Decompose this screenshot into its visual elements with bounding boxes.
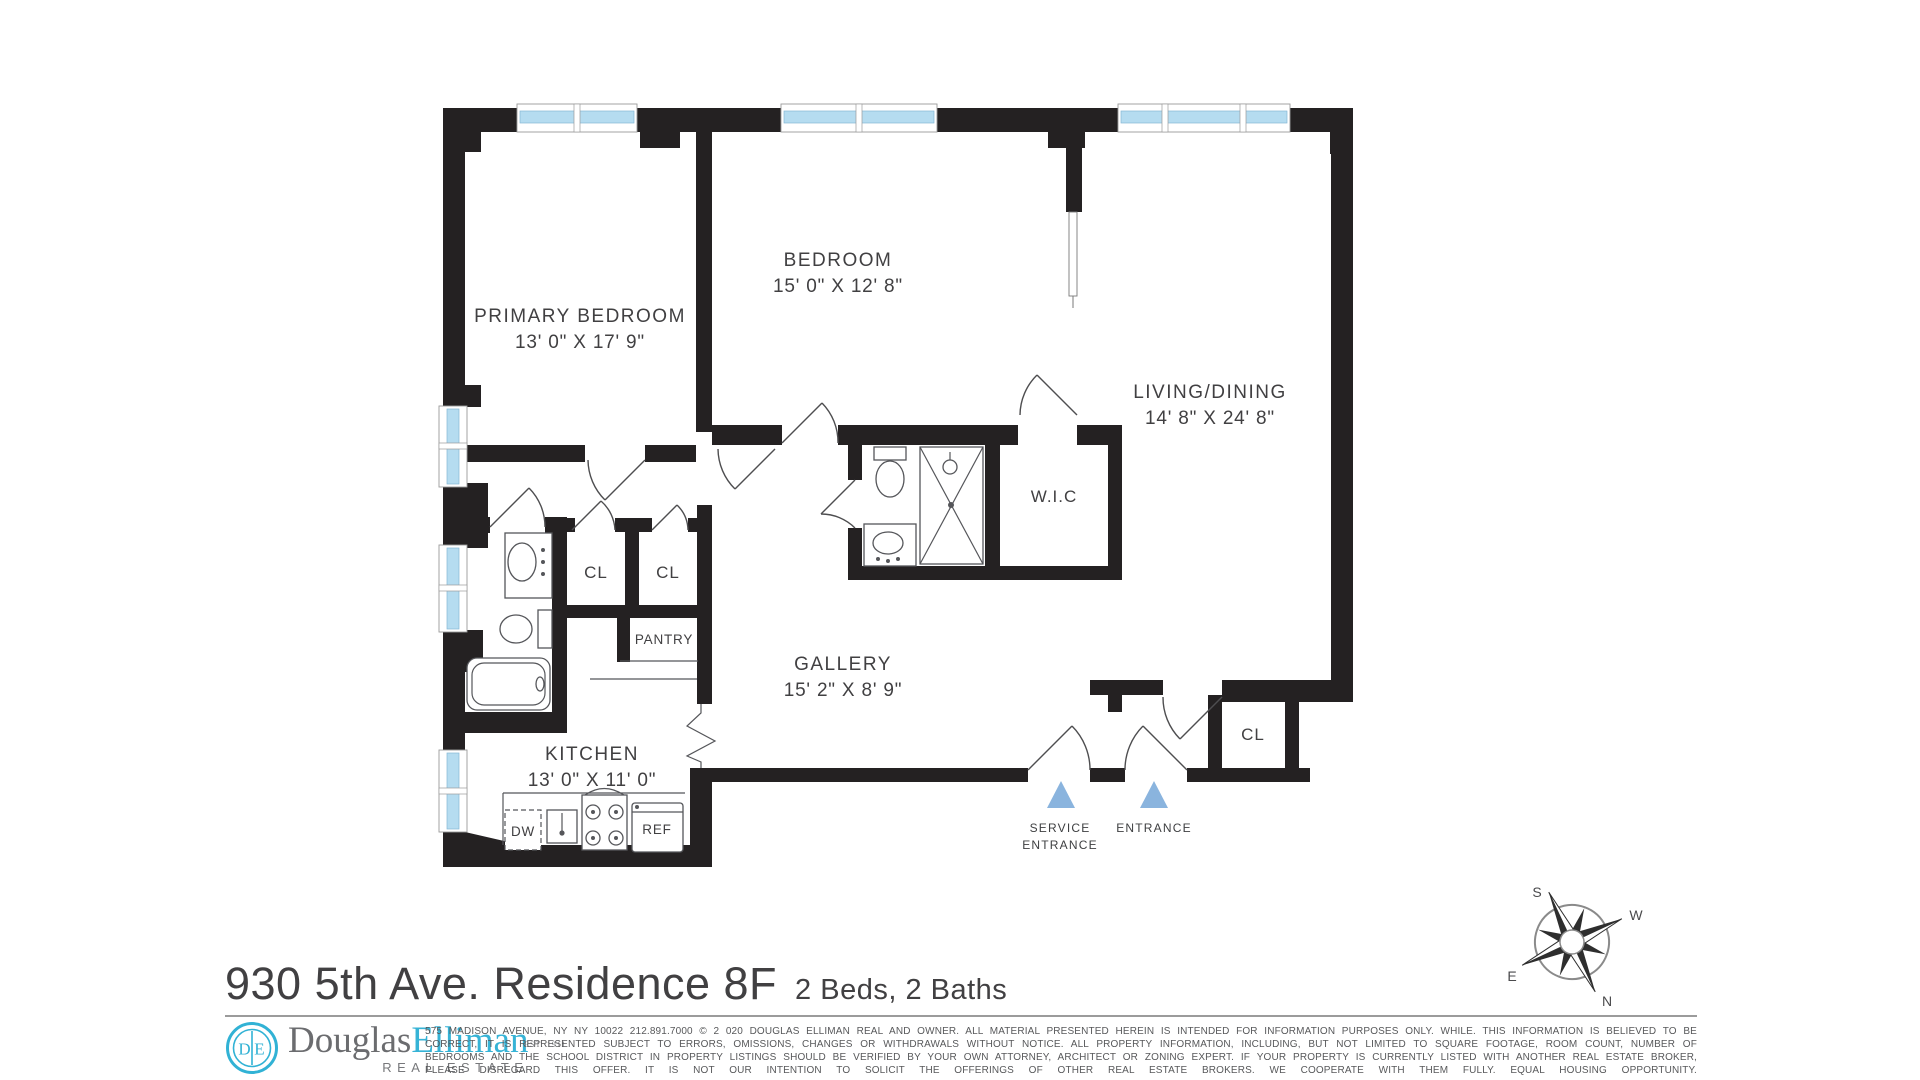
toilet-icon [500,615,532,643]
appliance-label-ref: REF [642,822,671,837]
room-label-wic: W.I.C [1031,487,1078,506]
room-dims-primary-bedroom: 13' 0" X 17' 9" [515,332,645,353]
closet-label-cl-2: CL [656,563,680,582]
disclaimer-line-2: CORRECT, IT IS REPRESENTED SUBJECT TO ER… [425,1039,1697,1052]
page-title: 930 5th Ave. Residence 8F [225,958,777,1010]
disclaimer-line-3: BEDROOMS AND THE SCHOOL DISTRICT IN PROP… [425,1052,1697,1065]
appliance-label-dw: DW [511,824,535,839]
compass-label-e: E [1507,968,1516,984]
logo-monogram-e: E [254,1040,264,1059]
compass-rose: S W E N [1499,869,1645,1015]
entrance-arrow-icon [1140,781,1168,808]
shower-head-icon [943,460,957,474]
toilet-icon [876,461,904,497]
compass-label-s: S [1532,884,1541,900]
disclaimer-line-4: PLEASE DISREGARD THIS OFFER. IT IS NOT O… [425,1065,1697,1078]
closet-label-cl-1: CL [584,563,608,582]
room-label-kitchen: KITCHEN [545,744,639,765]
compass-label-w: W [1629,907,1643,923]
disclaimer-block: 575 MADISON AVENUE, NY NY 10022 212.891.… [425,1026,1697,1078]
disclaimer-line-1: 575 MADISON AVENUE, NY NY 10022 212.891.… [425,1026,1697,1039]
entrance-label: ENTRANCE [1116,821,1192,835]
compass-star-icon [1499,869,1645,1015]
room-dims-kitchen: 13' 0" X 11' 0" [528,770,657,791]
title-row: 930 5th Ave. Residence 8F 2 Beds, 2 Bath… [225,958,1007,1010]
compass-label-n: N [1602,993,1612,1009]
toilet-tank-icon [538,610,552,648]
floor-plan-svg: PRIMARY BEDROOM 13' 0" X 17' 9" BEDROOM … [0,0,1920,1080]
room-label-living-dining: LIVING/DINING [1133,382,1287,403]
room-dims-gallery: 15' 2" X 8' 9" [784,680,903,701]
room-label-primary-bedroom: PRIMARY BEDROOM [474,306,686,327]
room-label-gallery: GALLERY [794,654,892,675]
room-dims-bedroom: 15' 0" X 12' 8" [773,276,903,297]
logo-monogram-d: D [238,1040,250,1059]
brand-first: Douglas [288,1020,411,1061]
toilet-tank-icon [874,447,906,460]
tub-faucet-icon [536,677,544,691]
closet-label-pantry: PANTRY [635,632,693,647]
room-dims-living-dining: 14' 8" X 24' 8" [1145,408,1275,429]
beds-baths-label: 2 Beds, 2 Baths [795,974,1007,1007]
sink-icon [873,532,903,554]
floor-plan-page: PRIMARY BEDROOM 13' 0" X 17' 9" BEDROOM … [0,0,1920,1080]
room-label-bedroom: BEDROOM [784,250,893,271]
closet-label-entry-cl: CL [1241,725,1265,744]
service-entrance-arrow-icon [1047,781,1075,808]
service-entrance-label-line1: SERVICE [1030,821,1091,835]
service-entrance-label-line2: ENTRANCE [1022,838,1098,852]
brand-logo-mark-icon: D E [225,1021,279,1075]
divider-line [225,1015,1697,1017]
fixtures [467,447,983,852]
sink-icon [508,543,536,581]
